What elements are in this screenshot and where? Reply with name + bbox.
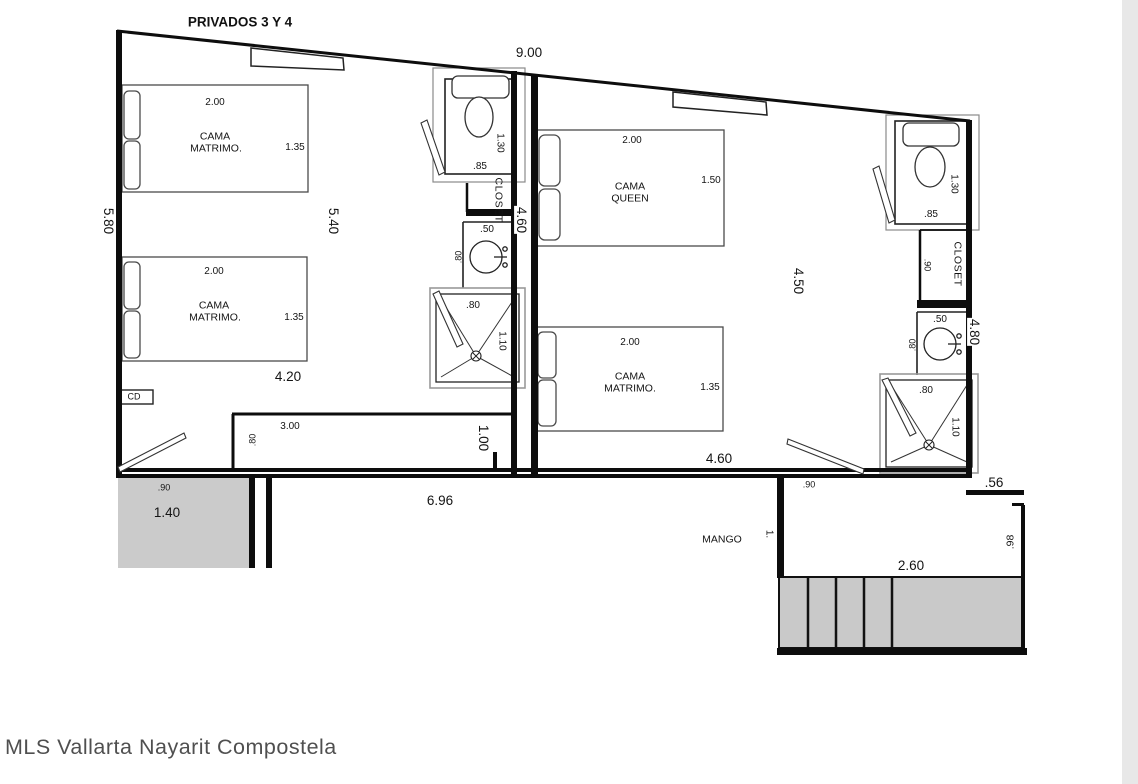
dim-room2-width: 4.60 [706,452,732,466]
floor-plan-drawing [0,0,1138,784]
counter-height: 1.00 [476,425,490,451]
bath1-closet-label: CLOSET [492,177,503,222]
bath1-shower-depth: 1.10 [496,331,507,350]
pillow [124,311,140,358]
bath2-closet-label: CLOSET [951,241,962,286]
bath1-depth: 4.60 [514,206,528,234]
bed3-label-1: CAMA [615,371,645,382]
bath1-closet [466,183,513,216]
wall-patio-left [777,478,784,578]
bed1-label-2: MATRIMO. [190,143,242,154]
counter-room1 [232,414,513,470]
pillow [124,262,140,309]
wall-cavity-right [531,75,538,474]
bed-queen-label-1: CAMA [615,181,645,192]
pillow [538,332,556,378]
bed1-width: 2.00 [205,98,224,109]
dim-room1-width: 4.20 [275,370,301,384]
toilet-tank-icon [452,76,509,98]
bed3-depth: 1.35 [700,383,719,394]
wall-bottom-outer [116,468,971,472]
toilet-bowl-icon [465,97,493,137]
bath2-depth: 4.80 [967,318,981,346]
bath1-sink-depth: .80 [454,251,463,264]
page-edge-strip [1122,0,1138,784]
counter-depth: .80 [248,434,257,447]
patio-left-width: .90 [158,483,171,492]
bath2-sink-width: .50 [933,315,947,326]
pillow [538,380,556,426]
dim-room2-height: 4.50 [791,268,805,294]
wall-stub-left-a [249,478,255,568]
stairs-bottom-edge [777,648,1027,655]
drain-icon [471,351,481,361]
dim-left-height: 5.80 [101,208,115,234]
pillow [539,189,560,240]
bath2-shower-width: .80 [919,386,933,397]
bath1-sink-icon [470,241,507,273]
mango-label: MANGO [702,534,742,545]
wall-bottom-inner [116,474,971,478]
counter-width: 3.00 [280,422,299,433]
door-swing [433,291,463,347]
wall-stub-left-b [266,478,272,568]
bed1-label-1: CAMA [200,131,230,142]
door-swing-room1 [118,433,186,472]
wall-right [966,120,972,478]
dim-room1-height: 5.40 [326,208,340,234]
bed2-label-2: MATRIMO. [189,312,241,323]
patio-left-length: 1.40 [154,506,180,520]
wall-left [116,30,122,478]
watermark-text: MLS Vallarta Nayarit Compostela [5,735,337,760]
bed1-depth: 1.35 [285,143,304,154]
bath1-sink-width: .50 [480,225,494,236]
dim-top-width: 9.00 [516,46,542,60]
bed-queen-depth: 1.50 [701,176,720,187]
bed3-label-2: MATRIMO. [604,383,656,394]
mango-width: 1. [763,530,774,538]
wall-stub [493,452,497,470]
door-swing [873,166,895,223]
door-swing [882,378,916,436]
pillow [539,135,560,186]
bed-queen-label-2: QUEEN [611,193,648,204]
wall-step-right [966,490,1024,495]
toilet-bowl-icon [915,147,945,187]
dim-stairs-width: 2.60 [898,559,924,573]
bed3-width: 2.00 [620,338,639,349]
floor-plan-page: PRIVADOS 3 Y 4 9.00 5.80 5.40 4.20 2.00 … [0,0,1138,784]
patio-left-slab [118,478,249,568]
pillow [124,141,140,189]
bath1-shower-width: .80 [466,301,480,312]
bed2-label-1: CAMA [199,300,229,311]
toilet-tank-icon [903,123,959,146]
bath2-sink-icon [924,328,961,360]
drain-icon [924,440,934,450]
bath2-toilet-depth: 1.30 [948,174,959,193]
dim-offset-56: .56 [985,476,1004,490]
pillow [124,91,140,139]
room2-door-width: .90 [803,480,816,489]
bed-queen-width: 2.00 [622,136,641,147]
page-title: PRIVADOS 3 Y 4 [188,15,292,30]
wall-cavity-left [511,71,517,474]
bath2-shower-depth: 1.10 [949,417,960,436]
bath2-toilet-width: .85 [924,210,938,221]
bath1-toilet-depth: 1.30 [494,133,505,152]
bath2-sink-depth: .80 [908,339,917,352]
stairs-block [779,577,1023,648]
wall-patio-right [1021,505,1025,653]
bed2-depth: 1.35 [284,313,303,324]
bed2-width: 2.00 [204,267,223,278]
cd-box-label: CD [128,392,141,401]
bath2-closet-width: .90 [922,259,931,272]
dim-stairs-depth: .98 [1005,535,1016,550]
dim-terrace-width: 6.96 [427,494,453,508]
bath1-toilet-width: .85 [473,162,487,173]
